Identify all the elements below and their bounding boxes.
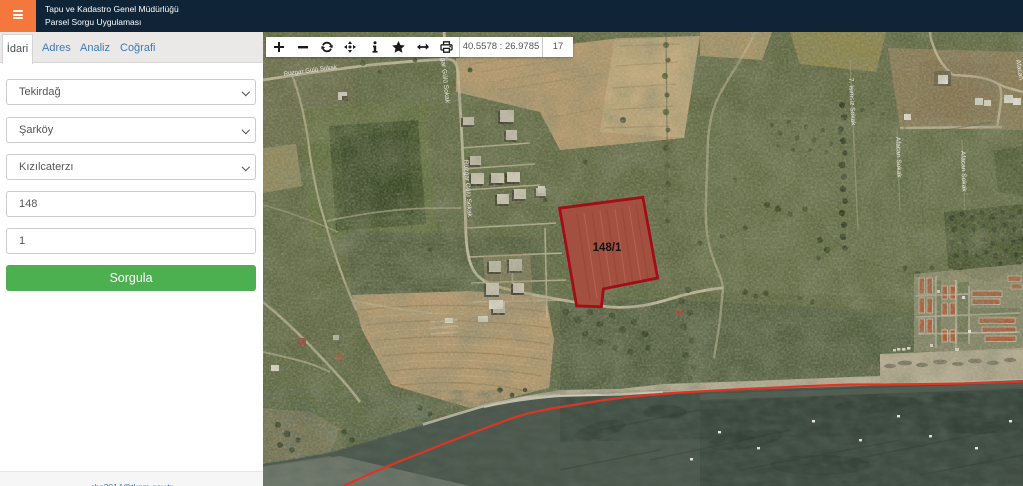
svg-text:Afacan Sokak: Afacan Sokak: [959, 151, 967, 193]
svg-text:Afacan Sokak: Afacan Sokak: [894, 137, 902, 179]
svg-text:148/1: 148/1: [593, 242, 622, 254]
